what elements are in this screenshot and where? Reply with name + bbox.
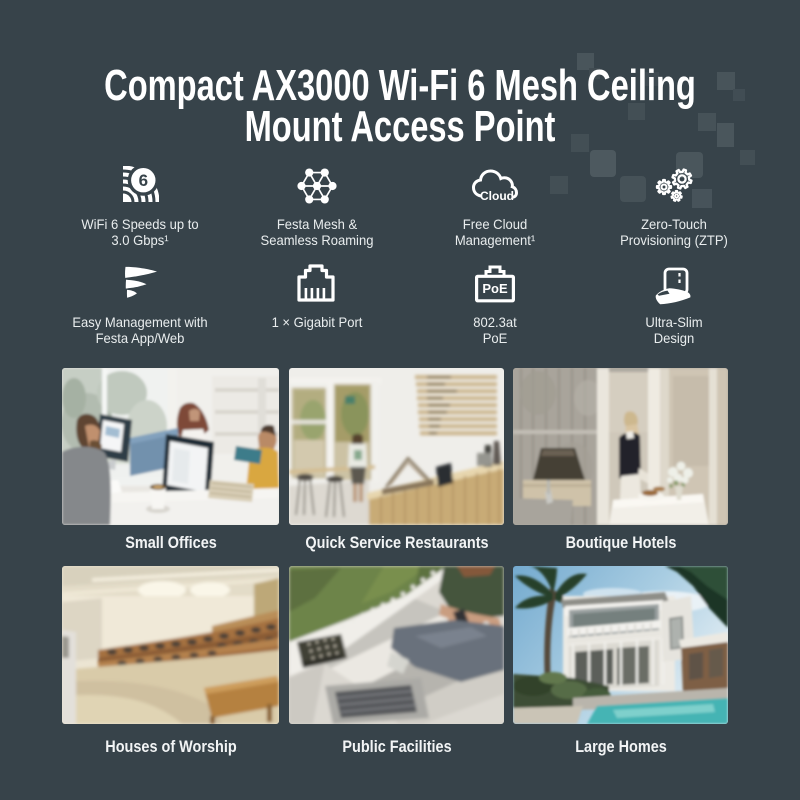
- svg-text:PoE: PoE: [482, 281, 508, 296]
- svg-text:6: 6: [139, 171, 148, 190]
- svg-text:Cloud: Cloud: [480, 189, 514, 202]
